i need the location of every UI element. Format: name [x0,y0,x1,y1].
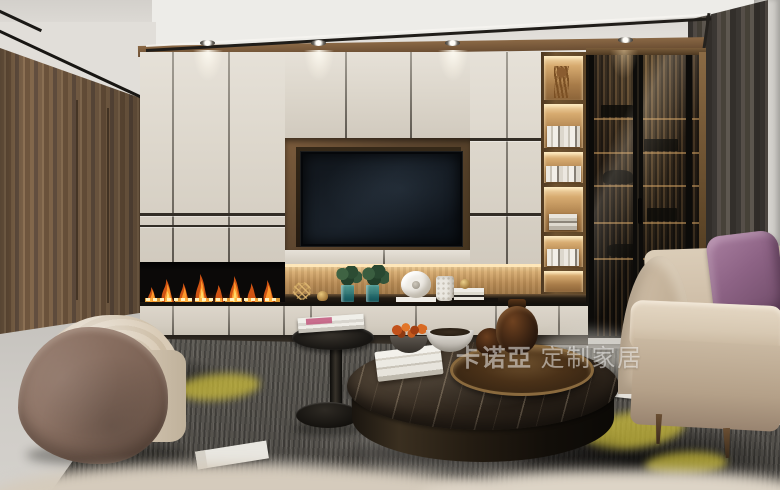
cabinet-below-tv [285,250,485,264]
brand-watermark-suffix: 定制家居 [541,344,643,372]
brand-watermark-name: 卡诺亞 [456,344,533,372]
downlight [311,40,326,46]
plant-foliage [359,265,389,286]
armchair-shell [18,327,168,464]
gold-wire-ornament [293,282,311,300]
stacked-books [549,214,577,230]
sculpture-hole [412,281,420,289]
shelf-books [547,249,579,266]
marble-bowl-contents [430,328,470,336]
plant-foliage [334,266,362,286]
brand-watermark: 卡诺亞定制家居 [456,338,716,373]
open-bookshelf [541,52,589,294]
downlight [445,40,460,46]
downlight-glow [434,50,472,96]
shelf-books [546,166,581,182]
living-room-render: 卡诺亞定制家居 [0,0,780,490]
teal-glass-vase [366,285,379,302]
fireplace-flames [140,262,285,304]
downlight-glow [189,50,227,96]
gold-ball-ornament [460,279,470,289]
gold-small-ornament [317,291,328,301]
twig-decor [554,66,569,98]
walnut-door-groove [76,100,78,300]
walnut-door-groove [107,108,109,303]
teal-glass-vase [341,285,354,302]
side-table-stem [330,344,342,408]
side-table-base [296,402,360,428]
cabinet-right-column [470,52,542,264]
downlight-glow [300,50,338,96]
glass-door-handle [638,198,642,224]
glass-cabinet-top-frame [586,48,706,55]
tv [301,152,462,246]
shelf-books [547,126,580,147]
downlight-glow [606,50,642,92]
niche-book-stack [454,288,484,300]
downlight [200,40,215,46]
linear-fireplace [140,262,285,304]
glass-door-frame-left [589,55,594,336]
orange-flowers [386,322,430,340]
downlight [618,37,633,43]
